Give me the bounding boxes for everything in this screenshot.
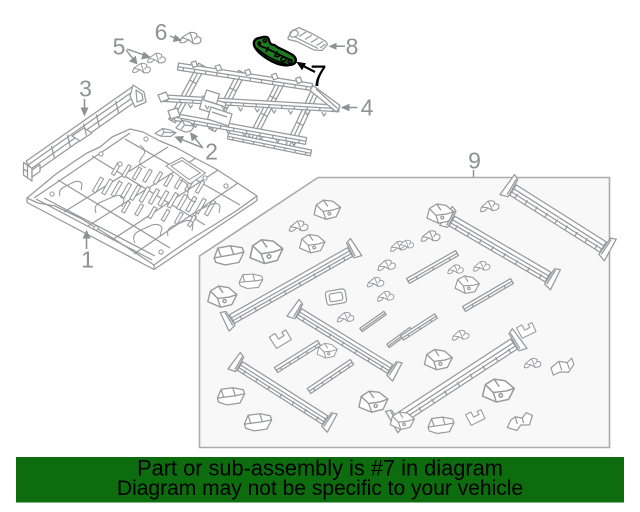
svg-text:Diagram may not be specific to: Diagram may not be specific to your vehi… bbox=[117, 477, 523, 500]
svg-text:5: 5 bbox=[113, 34, 126, 60]
svg-text:3: 3 bbox=[79, 76, 92, 102]
svg-text:9: 9 bbox=[468, 148, 481, 174]
svg-text:7: 7 bbox=[310, 60, 327, 93]
svg-text:8: 8 bbox=[346, 34, 359, 60]
svg-text:6: 6 bbox=[155, 19, 168, 45]
svg-text:2: 2 bbox=[205, 139, 218, 165]
svg-text:1: 1 bbox=[81, 247, 94, 273]
svg-text:4: 4 bbox=[361, 95, 374, 121]
